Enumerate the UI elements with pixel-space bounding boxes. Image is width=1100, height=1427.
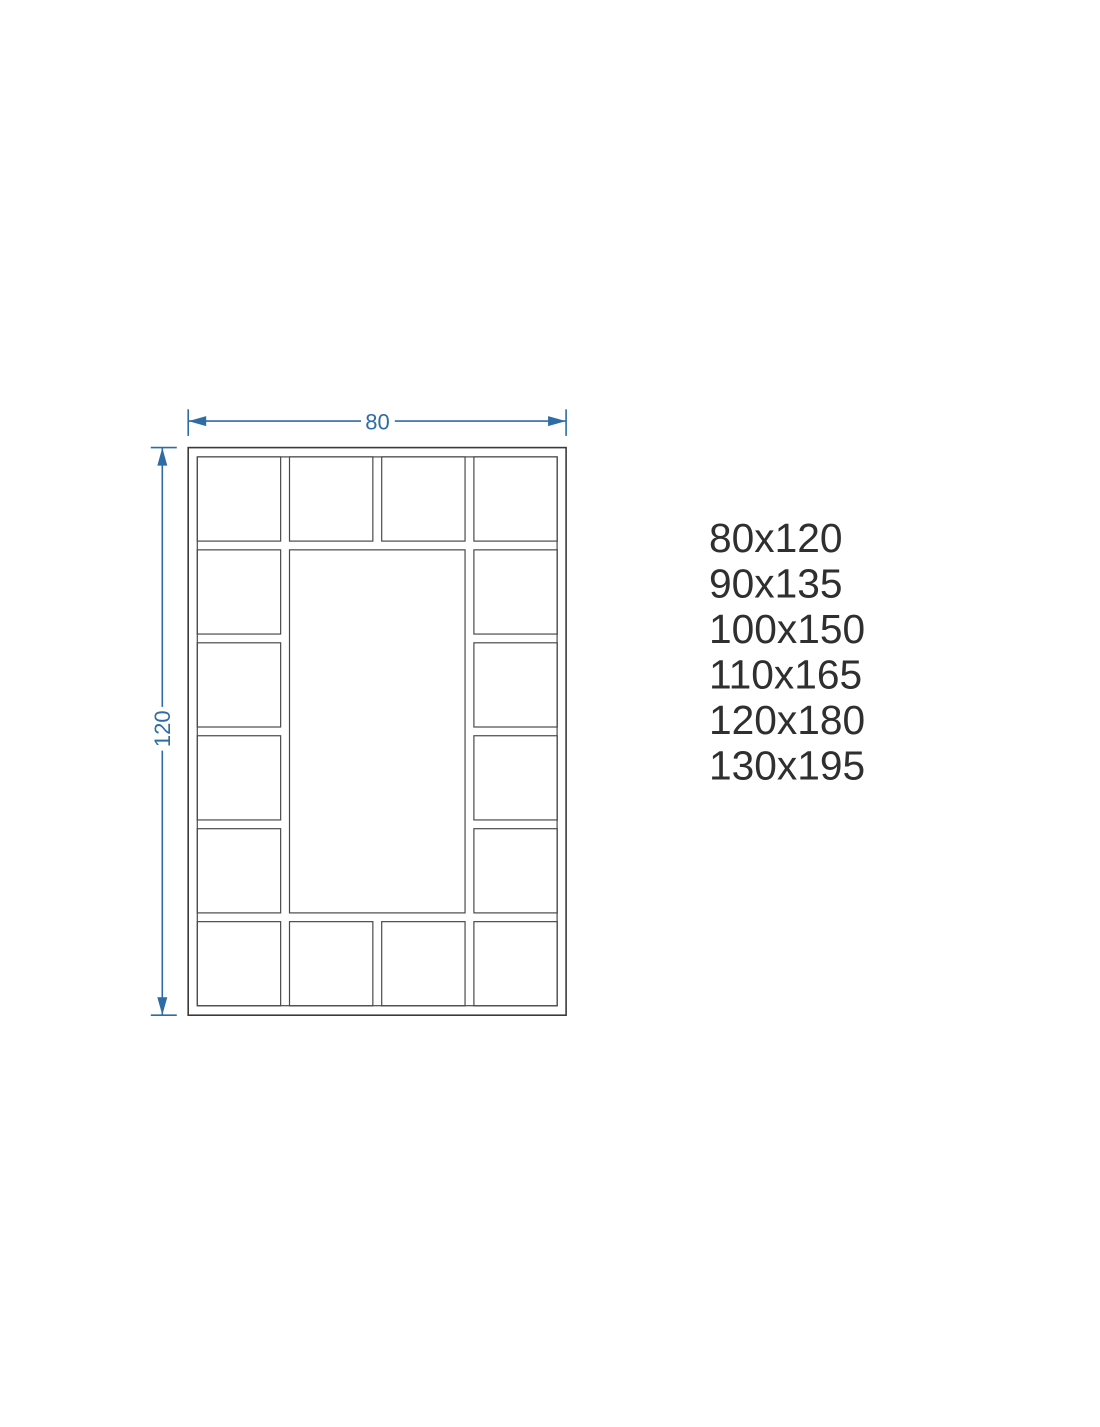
svg-text:120x180: 120x180: [709, 697, 865, 743]
svg-text:80x120: 80x120: [709, 515, 843, 561]
svg-text:90x135: 90x135: [709, 561, 843, 607]
svg-text:80: 80: [365, 409, 389, 434]
svg-text:120: 120: [150, 710, 175, 747]
svg-text:100x150: 100x150: [709, 606, 865, 652]
svg-text:130x195: 130x195: [709, 743, 865, 789]
svg-text:110x165: 110x165: [709, 652, 862, 698]
